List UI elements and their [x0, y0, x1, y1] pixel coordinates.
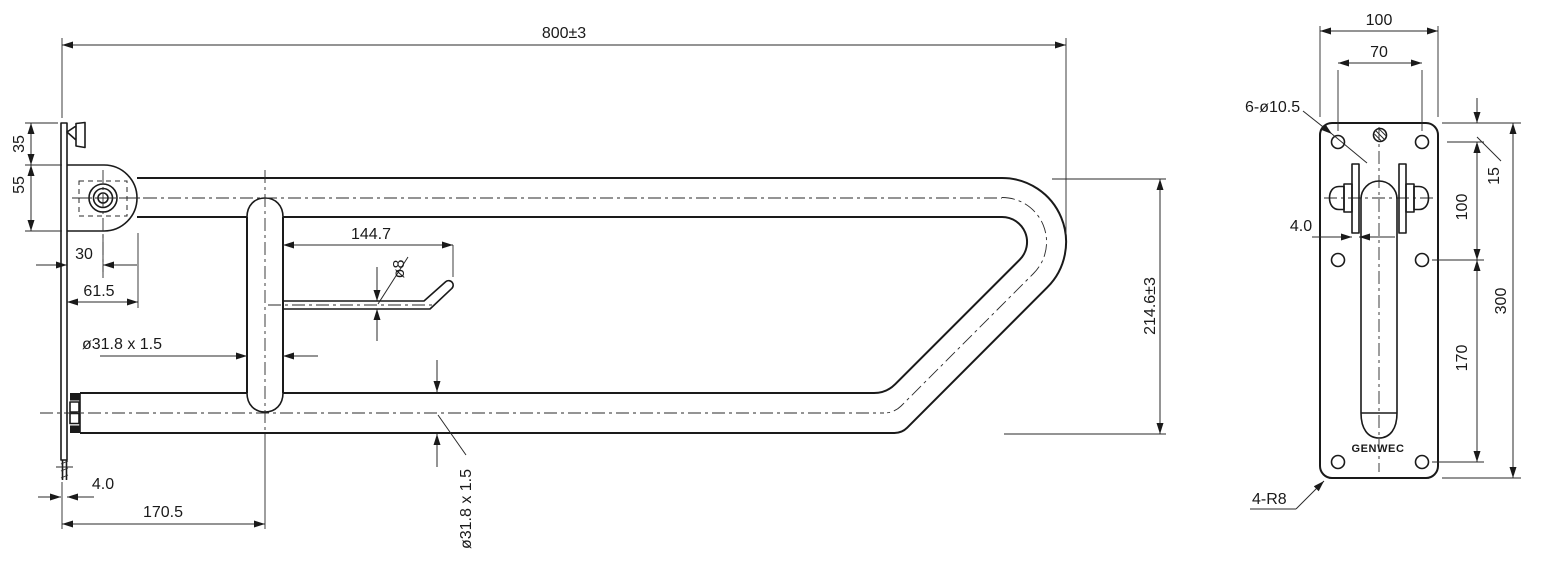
dim-holder-length: 144.7 [351, 226, 391, 243]
dim-drop-height: 214.6±3 [1142, 277, 1159, 335]
grab-bar-technical-drawing: 800±3 35 55 30 61.5 144.7 ø8 ø31.8 x 1.5 [0, 0, 1547, 562]
front-view [40, 123, 1066, 481]
side-view-dimensions: 100 70 6-ø10.5 4.0 15 100 170 300 [1245, 12, 1521, 509]
dim-plate-top-offset: 35 [11, 135, 28, 153]
brand-logo: GENWEC [1351, 443, 1404, 455]
dim-plate-height: 300 [1493, 288, 1510, 315]
dim-mount-holes: 6-ø10.5 [1245, 99, 1300, 116]
dim-plate-width: 100 [1366, 12, 1393, 29]
dim-bracket-height: 55 [11, 176, 28, 194]
dim-main-tube: ø31.8 x 1.5 [458, 469, 475, 549]
dim-overall-length: 800±3 [542, 25, 586, 42]
dim-holder-tube-dia: ø8 [391, 260, 408, 279]
dim-support-center-offset: 170.5 [143, 504, 183, 521]
center-pin [1374, 129, 1387, 142]
dim-hole-top-offset: 15 [1486, 167, 1503, 185]
technical-drawing-canvas: 800±3 35 55 30 61.5 144.7 ø8 ø31.8 x 1.5 [0, 0, 1547, 562]
dim-support-tube: ø31.8 x 1.5 [82, 336, 162, 353]
wall-flange-plate [61, 123, 67, 460]
dim-bracket-depth: 61.5 [83, 283, 114, 300]
mounting-stud [56, 460, 73, 480]
front-centerlines [40, 170, 1047, 440]
dim-hole-spacing-h: 70 [1370, 44, 1388, 61]
dim-hole-spacing-v1: 100 [1454, 194, 1471, 221]
dim-hole-spacing-v2: 170 [1454, 345, 1471, 372]
dim-corner-radius: 4-R8 [1252, 491, 1287, 508]
hinge-mechanism [1330, 164, 1429, 233]
dim-pivot-offset: 30 [75, 246, 93, 263]
dim-flange-thickness: 4.0 [92, 476, 114, 493]
release-knob [67, 123, 85, 148]
side-view: GENWEC [1320, 123, 1438, 478]
dim-leaf-thickness: 4.0 [1290, 218, 1312, 235]
